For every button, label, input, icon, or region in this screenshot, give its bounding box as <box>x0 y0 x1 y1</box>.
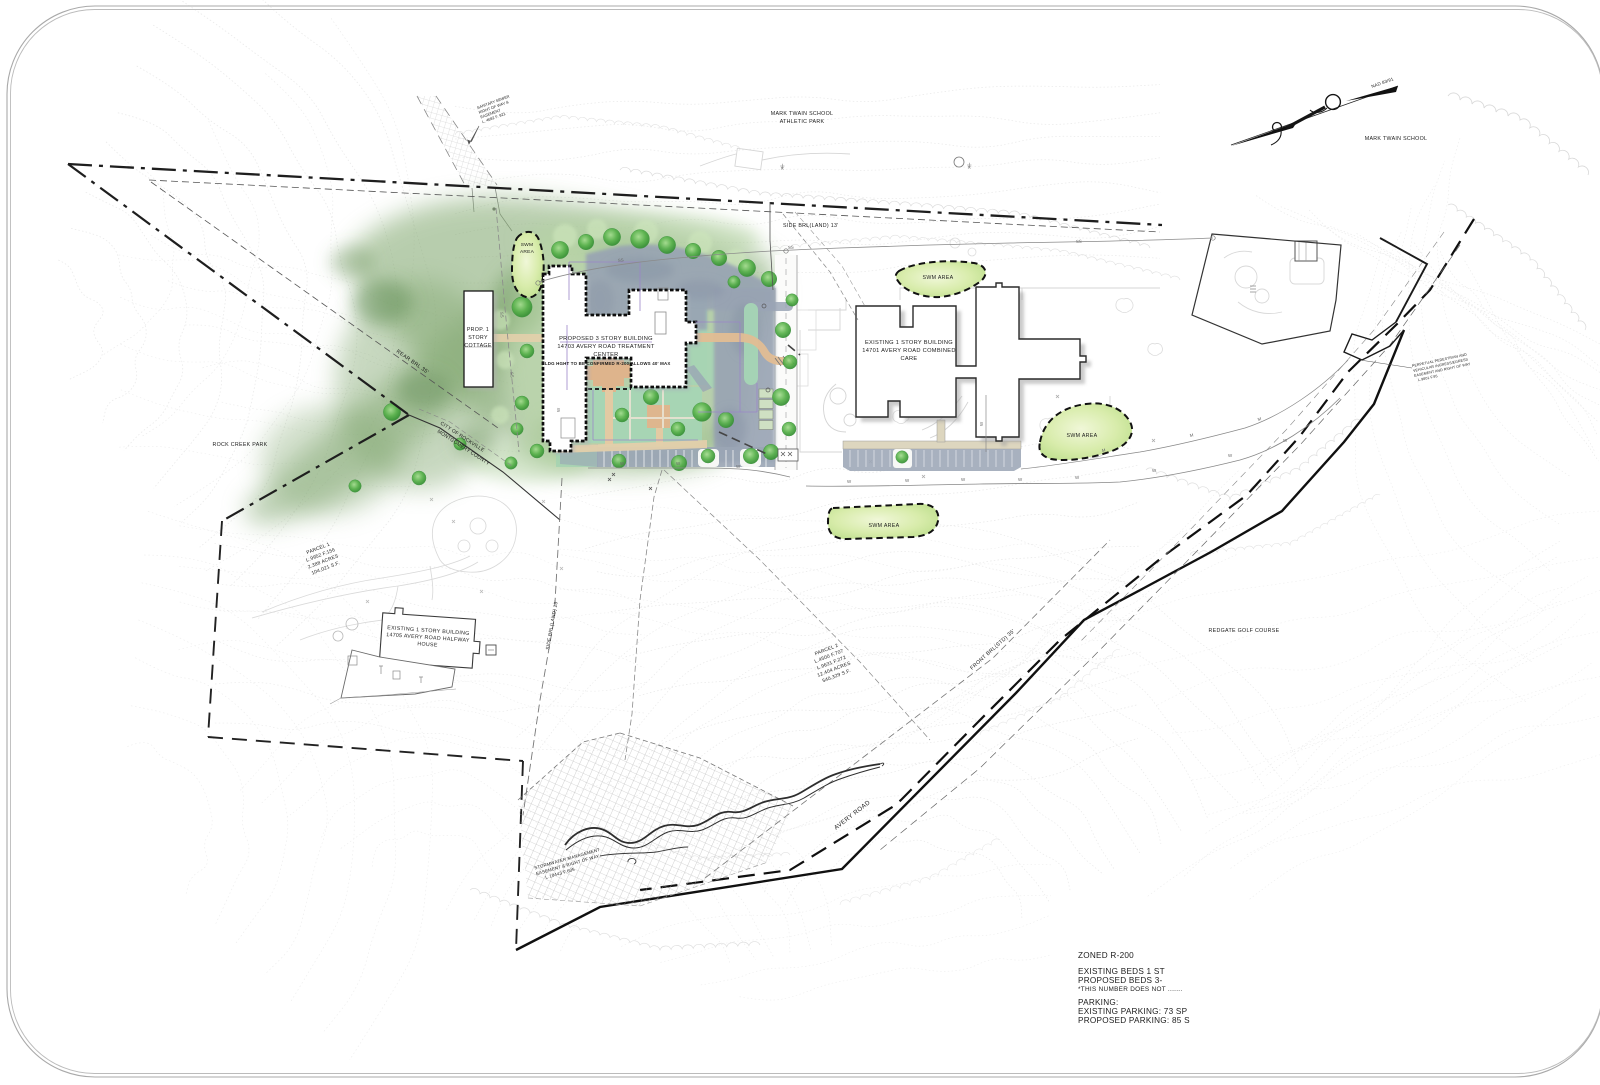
svg-text:STORY: STORY <box>468 335 488 341</box>
svg-text:PROPOSED BEDS 3-: PROPOSED BEDS 3- <box>1078 976 1163 985</box>
svg-text:SWM AREA: SWM AREA <box>923 275 954 281</box>
svg-text:ROCK CREEK PARK: ROCK CREEK PARK <box>212 442 267 448</box>
svg-text:ATHLETIC PARK: ATHLETIC PARK <box>780 119 825 125</box>
svg-text:MARK TWAIN SCHOOL: MARK TWAIN SCHOOL <box>1365 136 1428 142</box>
svg-text:PROP. 1: PROP. 1 <box>467 327 489 333</box>
svg-text:PROPOSED 3 STORY BUILDING: PROPOSED 3 STORY BUILDING <box>559 336 653 342</box>
svg-text:SIDE BRL(LAND) 13': SIDE BRL(LAND) 13' <box>783 223 839 229</box>
svg-text:SS: SS <box>618 257 624 263</box>
svg-text:SWM: SWM <box>521 242 534 248</box>
svg-text:SS: SS <box>1076 239 1082 244</box>
svg-text:COTTAGE: COTTAGE <box>464 343 491 349</box>
svg-text:EXISTING BEDS 1 ST: EXISTING BEDS 1 ST <box>1078 967 1165 976</box>
svg-text:AREA: AREA <box>520 249 535 255</box>
svg-text:*THIS NUMBER DOES NOT .......: *THIS NUMBER DOES NOT ....... <box>1078 986 1182 993</box>
svg-text:ZONED R-200: ZONED R-200 <box>1078 951 1134 960</box>
svg-text:14703 AVERY ROAD TREATMENT: 14703 AVERY ROAD TREATMENT <box>557 344 655 350</box>
svg-text:SWM AREA: SWM AREA <box>869 523 900 529</box>
svg-text:SS: SS <box>499 311 505 318</box>
svg-text:PROPOSED PARKING: 85 S: PROPOSED PARKING: 85 S <box>1078 1016 1190 1025</box>
svg-text:REDGATE GOLF COURSE: REDGATE GOLF COURSE <box>1209 628 1280 634</box>
svg-text:EXISTING 1 STORY BUILDING: EXISTING 1 STORY BUILDING <box>865 340 953 346</box>
svg-text:SS: SS <box>788 245 794 250</box>
svg-text:CENTER: CENTER <box>593 352 618 358</box>
svg-text:PARKING:: PARKING: <box>1078 998 1119 1007</box>
svg-text:CARE: CARE <box>900 356 917 362</box>
svg-text:14701 AVERY ROAD COMBINED: 14701 AVERY ROAD COMBINED <box>862 348 955 354</box>
svg-text:BLDG HGHT TO BE CONFIRMED R-20: BLDG HGHT TO BE CONFIRMED R-200 ALLOWS 4… <box>541 361 670 366</box>
svg-text:SS: SS <box>509 371 515 378</box>
svg-text:SWM AREA: SWM AREA <box>1067 433 1098 439</box>
svg-text:EXISTING PARKING: 73 SP: EXISTING PARKING: 73 SP <box>1078 1007 1188 1016</box>
svg-text:MARK TWAIN SCHOOL: MARK TWAIN SCHOOL <box>771 111 834 117</box>
